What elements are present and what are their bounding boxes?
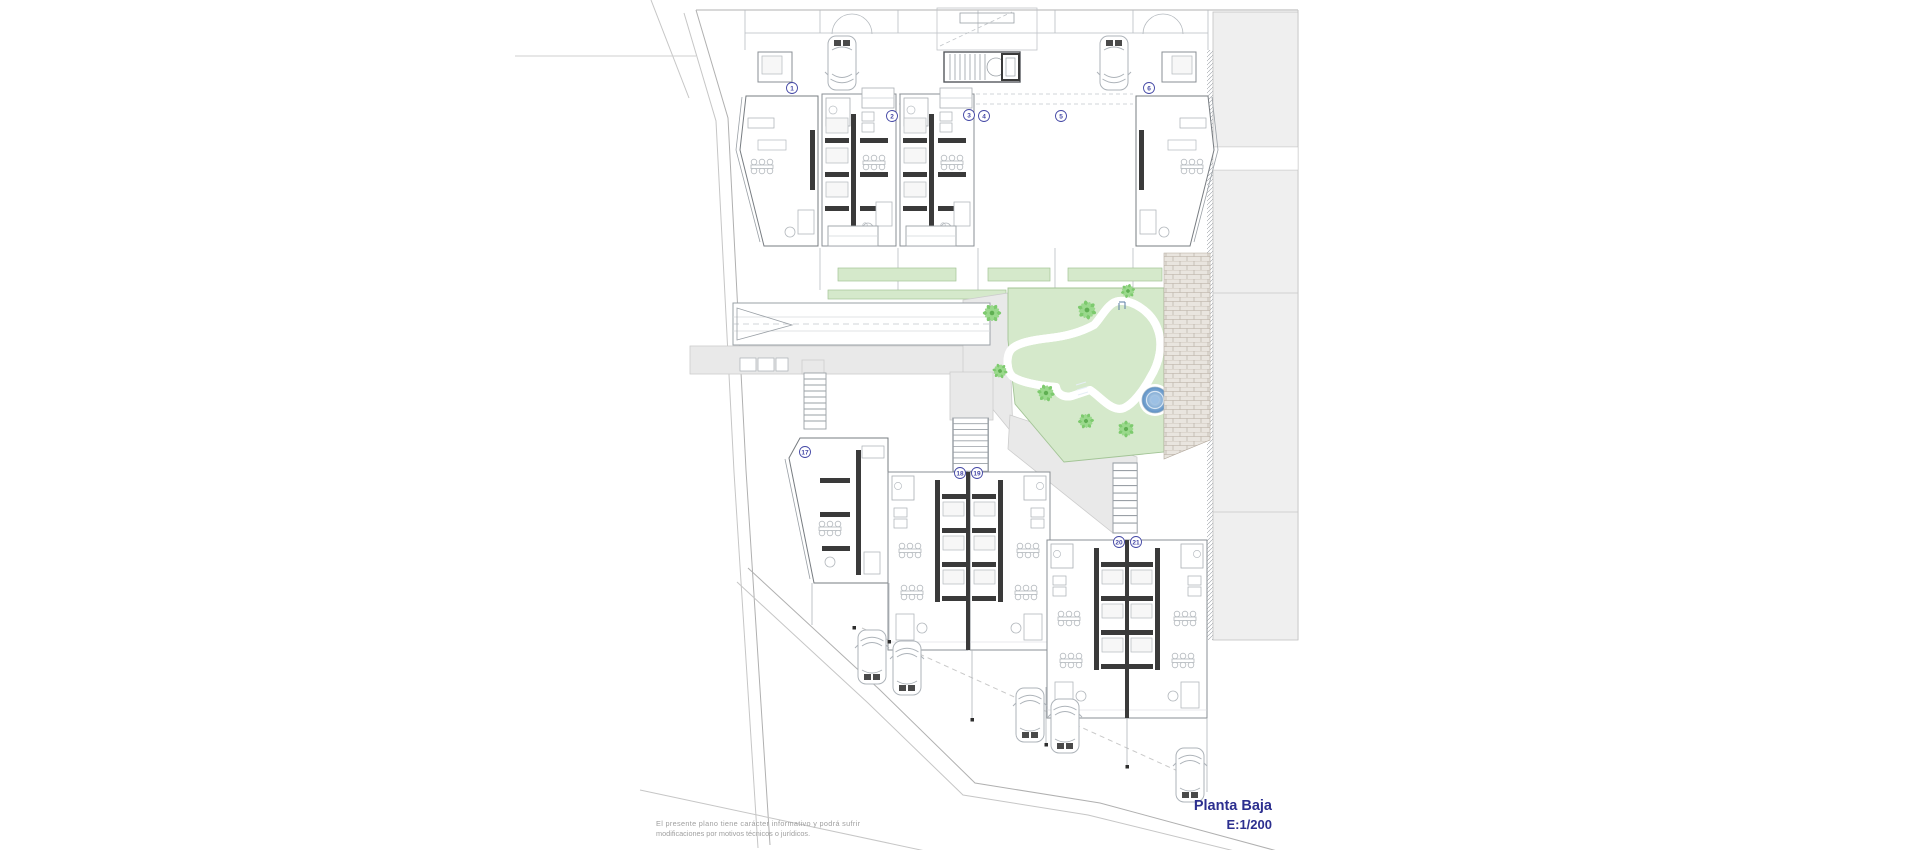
svg-text:18: 18 xyxy=(956,470,964,477)
disclaimer-line-1: El presente plano tiene carácter informa… xyxy=(656,819,861,828)
car-icon xyxy=(855,630,889,684)
svg-text:21: 21 xyxy=(1132,539,1140,546)
svg-text:20: 20 xyxy=(1115,539,1123,546)
paved-deck xyxy=(1164,253,1210,459)
car-icon xyxy=(825,36,859,90)
unit-18 xyxy=(888,472,968,650)
svg-text:3: 3 xyxy=(967,112,971,119)
car-icon xyxy=(1173,748,1207,802)
party-wall xyxy=(1125,540,1129,718)
stairs-center xyxy=(953,418,988,471)
top-building xyxy=(736,8,1920,299)
car-icon xyxy=(1097,36,1131,90)
car-icon xyxy=(1048,699,1082,753)
stair-core xyxy=(944,52,1020,82)
svg-text:4: 4 xyxy=(982,113,986,120)
site-plan-svg: 1 2 3 4 5 6 17 18 19 20 21 Planta Baja E… xyxy=(0,0,1920,850)
stairs-west xyxy=(804,373,826,429)
unit-1 xyxy=(736,52,818,246)
svg-text:1: 1 xyxy=(790,85,794,92)
unit-3 xyxy=(900,88,974,246)
car-icon xyxy=(890,641,924,695)
svg-text:2: 2 xyxy=(890,113,894,120)
entrance-lobby xyxy=(937,8,1037,50)
title-block: Planta Baja E:1/200 xyxy=(1194,798,1273,832)
floor-plan-page: 1 2 3 4 5 6 17 18 19 20 21 Planta Baja E… xyxy=(0,0,1920,850)
unit-20 xyxy=(1047,540,1127,718)
neighbor-parcel xyxy=(1207,12,1298,640)
garage-door-arcs xyxy=(832,14,1183,34)
unit-19 xyxy=(970,472,1050,650)
svg-text:5: 5 xyxy=(1059,113,1063,120)
unit-17 xyxy=(785,438,888,583)
svg-text:17: 17 xyxy=(801,449,809,456)
bottom-building-west xyxy=(785,438,1050,650)
stairs-east xyxy=(1113,463,1137,533)
car-icon xyxy=(1013,688,1047,742)
unit-21 xyxy=(1127,540,1207,718)
unit-6 xyxy=(1136,52,1218,246)
floor-title: Planta Baja xyxy=(1194,798,1273,814)
svg-text:19: 19 xyxy=(973,470,981,477)
svg-text:6: 6 xyxy=(1147,85,1151,92)
disclaimer-note: El presente plano tiene carácter informa… xyxy=(656,819,861,838)
scale-label: E:1/200 xyxy=(1226,817,1272,832)
unit-2 xyxy=(822,88,896,246)
bottom-building-east xyxy=(1047,540,1207,718)
disclaimer-line-2: modificaciones por motivos técnicos o ju… xyxy=(656,829,810,838)
party-wall xyxy=(966,472,970,650)
